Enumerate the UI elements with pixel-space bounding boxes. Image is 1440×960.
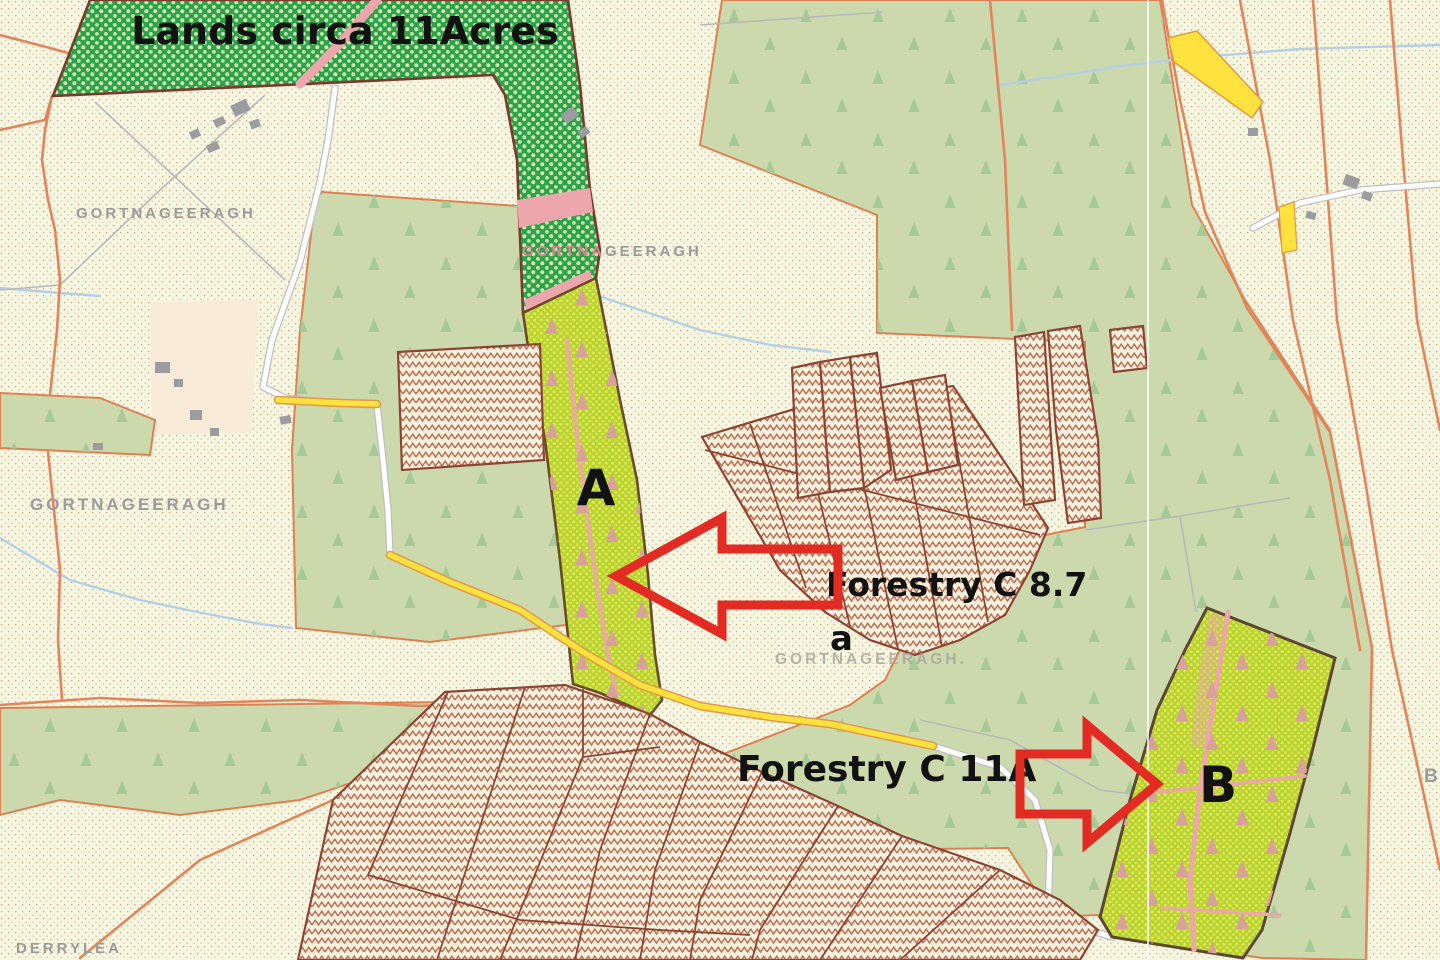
label-forestry-c-8-7: Forestry C 8.7	[826, 565, 1087, 604]
townland-label-gortnageeragh-strip: GORTNAGEERAGH	[522, 243, 702, 260]
label-forestry-c-8-7-sub: a	[830, 619, 853, 659]
townland-label-gortnageeragh-center: GORTNAGEERAGH.	[775, 651, 967, 668]
townland-label-gortnageeragh-w: GORTNAGEERAGH	[30, 495, 229, 514]
map-viewport: GORTNAGEERAGH GORTNAGEERAGH GORTNAGEERAG…	[0, 0, 1440, 960]
label-lands-circa-11-acres: Lands circa 11Acres	[131, 9, 559, 53]
label-forestry-c-11a: Forestry C 11A	[737, 749, 1036, 790]
label-parcel-b: B	[1199, 756, 1237, 814]
label-parcel-a: A	[577, 459, 616, 517]
townland-label-gortnageeragh-nw: GORTNAGEERAGH	[76, 205, 256, 222]
townland-label-derrylea: DERRYLEA	[16, 940, 122, 957]
land-sale-map: GORTNAGEERAGH GORTNAGEERAGH GORTNAGEERAG…	[0, 0, 1440, 960]
townland-label-east-partial: B	[1424, 766, 1440, 787]
hatched-parcel-west	[398, 344, 544, 470]
